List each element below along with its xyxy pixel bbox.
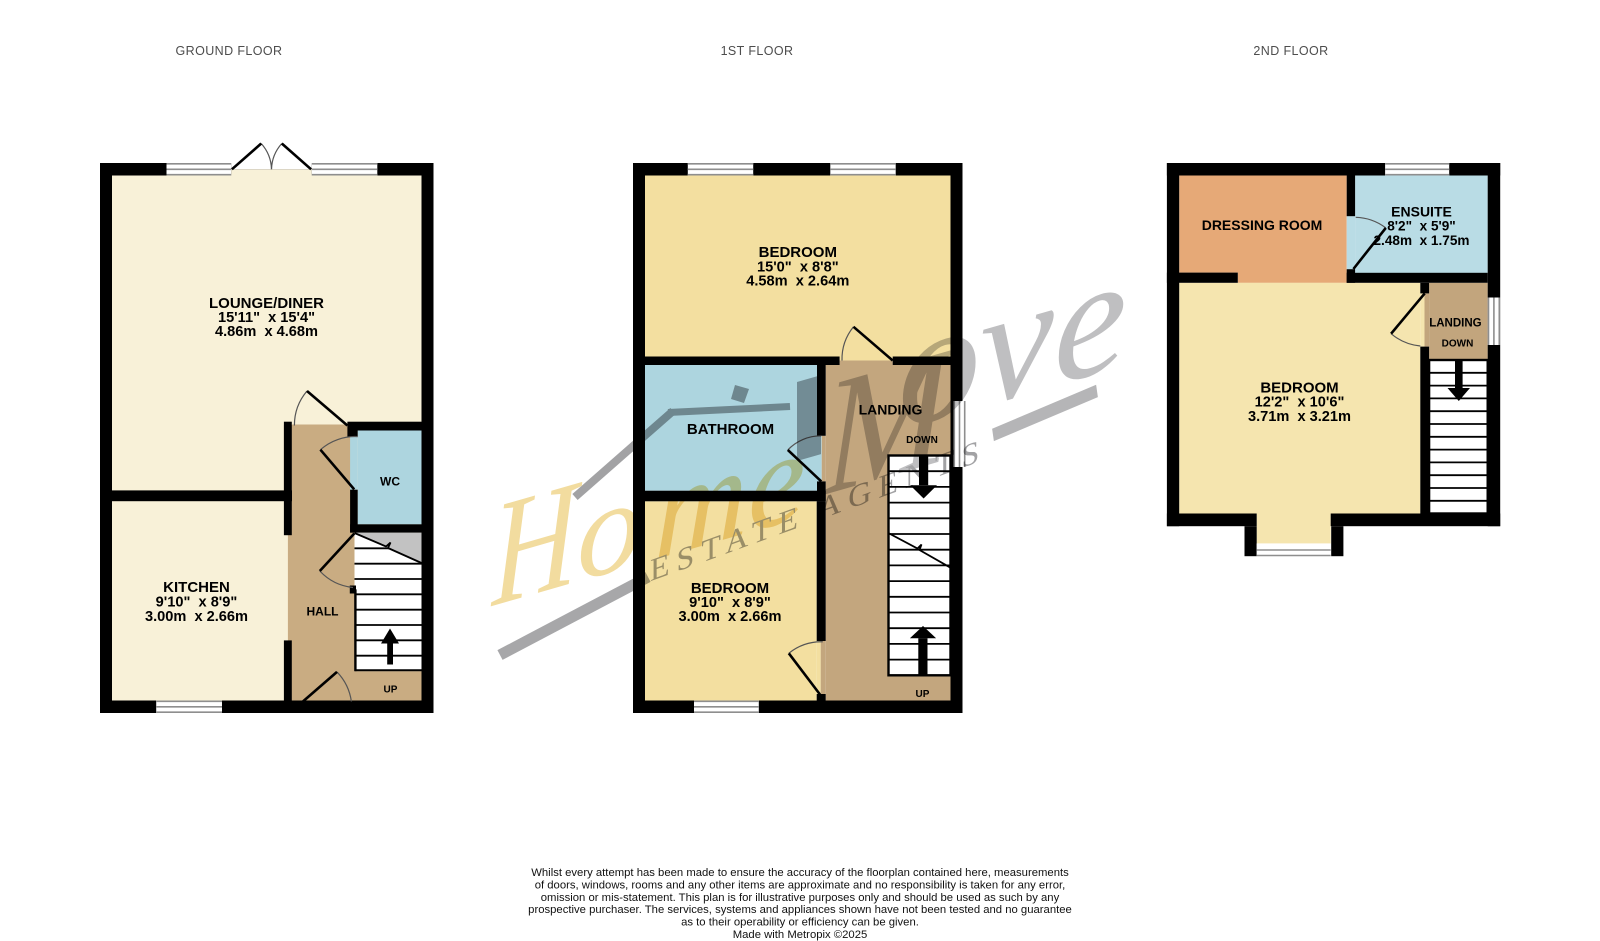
svg-text:DRESSING ROOM: DRESSING ROOM	[1202, 217, 1323, 233]
svg-text:1ST FLOOR: 1ST FLOOR	[721, 44, 794, 58]
svg-text:2.48m x 1.75m: 2.48m x 1.75m	[1374, 233, 1470, 248]
svg-text:WC: WC	[380, 475, 400, 489]
svg-text:prospective purchaser. The ser: prospective purchaser. The services, sys…	[528, 904, 1072, 916]
svg-text:of doors, windows, rooms and a: of doors, windows, rooms and any other i…	[535, 879, 1066, 891]
svg-text:Made with Metropix ©2025: Made with Metropix ©2025	[733, 929, 868, 941]
svg-text:omission or mis-statement. Thi: omission or mis-statement. This plan is …	[541, 892, 1060, 904]
svg-text:as to their operability or eff: as to their operability or efficiency ca…	[681, 917, 919, 929]
svg-text:LANDING: LANDING	[1429, 317, 1481, 329]
svg-text:Whilst every attempt has been: Whilst every attempt has been made to en…	[531, 867, 1069, 879]
svg-text:ENSUITE: ENSUITE	[1391, 203, 1452, 219]
svg-text:8'2" x 5'9": 8'2" x 5'9"	[1387, 219, 1456, 234]
svg-text:4.58m x 2.64m: 4.58m x 2.64m	[746, 273, 849, 289]
svg-text:HALL: HALL	[307, 605, 339, 619]
svg-text:3.71m x 3.21m: 3.71m x 3.21m	[1248, 409, 1351, 425]
svg-text:3.00m x 2.66m: 3.00m x 2.66m	[145, 609, 248, 625]
svg-text:KITCHEN: KITCHEN	[163, 579, 230, 596]
svg-text:2ND FLOOR: 2ND FLOOR	[1253, 44, 1328, 58]
svg-text:4.86m x 4.68m: 4.86m x 4.68m	[215, 324, 318, 340]
svg-text:UP: UP	[916, 689, 930, 700]
svg-text:3.00m x 2.66m: 3.00m x 2.66m	[678, 609, 781, 625]
svg-text:UP: UP	[384, 685, 398, 696]
svg-text:DOWN: DOWN	[1442, 339, 1474, 350]
svg-text:GROUND FLOOR: GROUND FLOOR	[176, 44, 283, 58]
